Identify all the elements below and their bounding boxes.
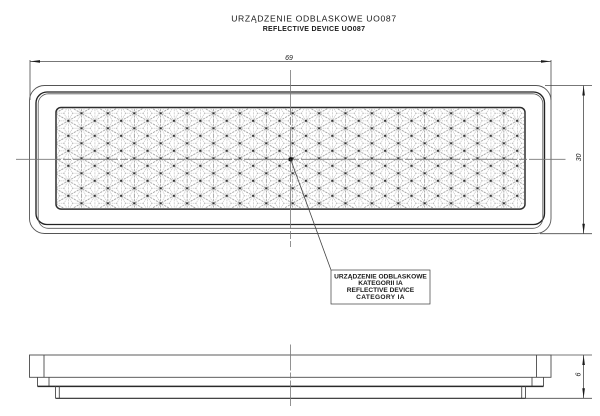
svg-text:30: 30 (576, 154, 583, 162)
svg-text:REFLECTIVE DEVICE UO087: REFLECTIVE DEVICE UO087 (263, 26, 366, 33)
svg-text:CATEGORY IA: CATEGORY IA (356, 294, 405, 301)
svg-text:69: 69 (285, 55, 293, 62)
svg-text:6: 6 (576, 372, 583, 376)
svg-text:URZĄDZENIE ODBLASKOWE UO087: URZĄDZENIE ODBLASKOWE UO087 (231, 13, 397, 23)
